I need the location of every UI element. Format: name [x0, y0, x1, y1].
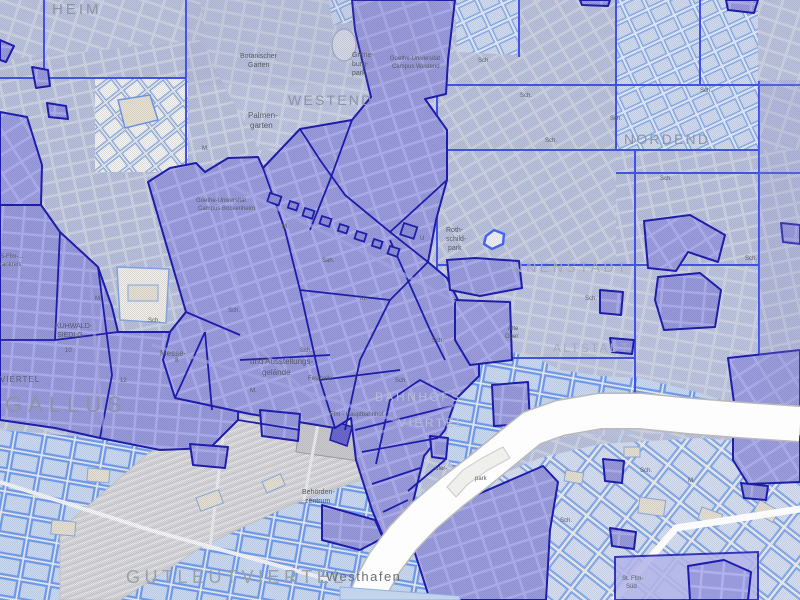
svg-text:Messe-: Messe- [160, 349, 187, 358]
svg-text:St. Ffm-: St. Ffm- [622, 576, 643, 582]
svg-text:GALLUS: GALLUS [5, 392, 128, 417]
svg-text:S-Ffm-...: S-Ffm-... [0, 254, 24, 260]
svg-text:Sch.: Sch. [520, 93, 532, 99]
svg-text:Sch.: Sch. [395, 378, 407, 384]
svg-text:ufer-: ufer- [435, 466, 447, 472]
svg-text:SIEDLG.: SIEDLG. [57, 332, 85, 339]
svg-text:Sch.: Sch. [585, 296, 597, 302]
svg-text:Sch.: Sch. [745, 256, 757, 262]
svg-text:Behörden-: Behörden- [302, 489, 335, 496]
svg-text:park: park [448, 245, 462, 252]
svg-text:burg-: burg- [352, 61, 369, 68]
svg-text:M.: M. [250, 388, 257, 394]
svg-text:Sch.: Sch. [610, 116, 622, 122]
svg-text:Campus Westend: Campus Westend [392, 64, 440, 70]
svg-text:Westhafen: Westhafen [326, 569, 401, 584]
svg-text:garten: garten [250, 121, 273, 130]
svg-text:Grüne-: Grüne- [352, 52, 374, 59]
svg-text:M.: M. [360, 296, 367, 302]
svg-text:Sah.: Sah. [322, 258, 335, 264]
svg-text:KUHWALD-: KUHWALD- [55, 323, 93, 330]
svg-text:Festhalle: Festhalle [308, 376, 333, 382]
svg-text:INNENSTADT: INNENSTADT [505, 259, 629, 275]
svg-text:Sch.: Sch. [432, 338, 444, 344]
svg-text:M.: M. [202, 146, 209, 152]
svg-text:WESTEND: WESTEND [288, 92, 373, 108]
svg-text:Goethe-Universität: Goethe-Universität [196, 198, 246, 204]
svg-text:Garten: Garten [248, 62, 270, 69]
svg-text:Sch.: Sch. [148, 318, 160, 324]
svg-text:10: 10 [65, 348, 72, 354]
svg-text:Botanischer: Botanischer [240, 53, 278, 60]
svg-text:Sch.: Sch. [228, 308, 240, 314]
svg-text:BAHNHOFS-: BAHNHOFS- [375, 390, 468, 404]
svg-text:park: park [475, 476, 488, 482]
svg-text:und Ausstellungs-: und Ausstellungs- [250, 357, 313, 366]
svg-text:Sch.: Sch. [545, 138, 557, 144]
svg-text:Roth-: Roth- [446, 227, 464, 234]
svg-text:schild-: schild- [446, 236, 467, 243]
svg-text:M.: M. [282, 224, 289, 230]
svg-text:M.: M. [95, 296, 102, 302]
svg-text:Süd: Süd [626, 584, 637, 590]
svg-text:park: park [352, 70, 366, 77]
svg-text:VIERTEL: VIERTEL [0, 375, 40, 384]
svg-text:Oper: Oper [505, 334, 518, 340]
svg-text:Palmen-: Palmen- [248, 111, 278, 120]
svg-text:ALTSTADT: ALTSTADT [553, 341, 630, 355]
svg-text:NORDEND: NORDEND [624, 131, 710, 147]
svg-text:rankreis: rankreis [0, 262, 21, 268]
svg-text:VIERTEL: VIERTEL [398, 416, 465, 430]
svg-text:12: 12 [120, 378, 127, 384]
svg-text:Sch.: Sch. [300, 348, 312, 354]
svg-text:Ffm - Hauptbahnhof: Ffm - Hauptbahnhof [330, 412, 384, 418]
svg-text:zentrum: zentrum [305, 498, 330, 505]
svg-text:GUTLEUTVIERTEL: GUTLEUTVIERTEL [126, 567, 348, 587]
svg-text:M.: M. [688, 478, 695, 484]
svg-text:Sch.: Sch. [640, 468, 652, 474]
svg-text:Sch.: Sch. [660, 176, 672, 182]
svg-text:gelände: gelände [262, 368, 291, 377]
svg-text:U: U [420, 236, 424, 242]
svg-text:HEIM: HEIM [52, 1, 102, 18]
svg-text:Campus Bockenheim: Campus Bockenheim [198, 206, 255, 212]
svg-text:Sch.: Sch. [478, 58, 490, 64]
svg-text:Goethe-Universität: Goethe-Universität [390, 56, 440, 62]
svg-text:Sch.: Sch. [560, 518, 572, 524]
svg-text:Alte: Alte [508, 326, 519, 332]
svg-text:Sch.: Sch. [700, 88, 712, 94]
